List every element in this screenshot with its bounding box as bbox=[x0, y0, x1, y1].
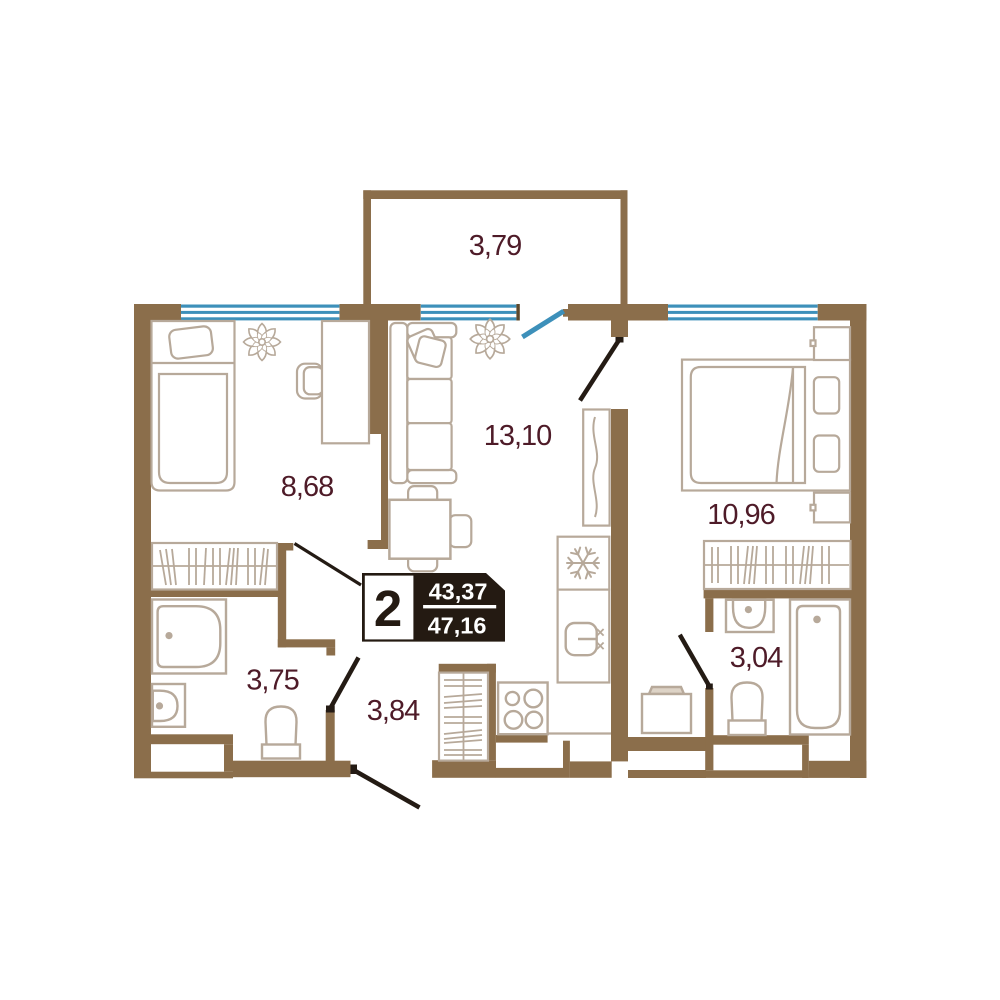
svg-text:10,96: 10,96 bbox=[707, 499, 775, 531]
svg-text:13,10: 13,10 bbox=[484, 420, 552, 452]
svg-text:3,84: 3,84 bbox=[367, 695, 420, 727]
svg-text:3,04: 3,04 bbox=[730, 642, 783, 674]
svg-text:2: 2 bbox=[374, 580, 402, 637]
svg-text:8,68: 8,68 bbox=[281, 471, 333, 503]
svg-text:3,75: 3,75 bbox=[246, 665, 298, 697]
svg-text:3,79: 3,79 bbox=[469, 230, 521, 262]
svg-text:43,37: 43,37 bbox=[429, 578, 488, 604]
svg-text:47,16: 47,16 bbox=[428, 612, 487, 638]
